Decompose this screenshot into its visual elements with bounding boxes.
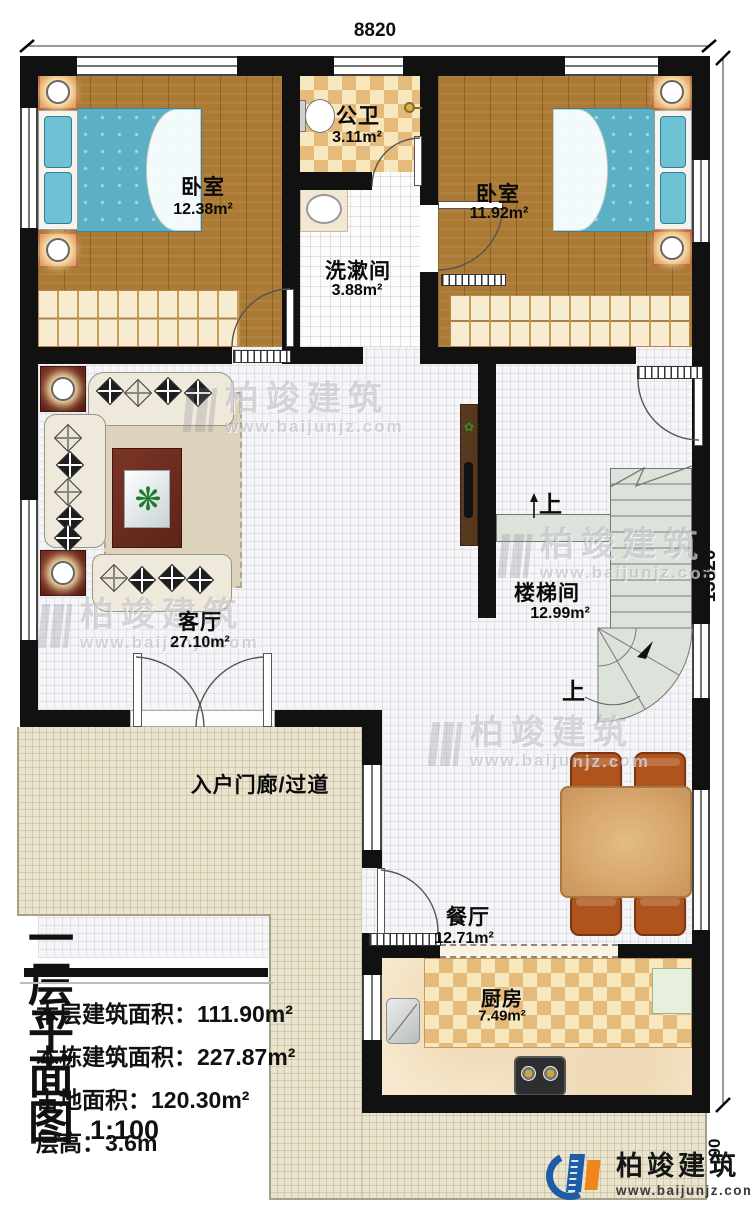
watermark: 柏竣建筑 www.baijunjz.com <box>185 382 404 437</box>
small-plant-icon: ✿ <box>461 420 477 434</box>
wall <box>290 347 363 364</box>
nightstand <box>652 74 692 110</box>
window <box>692 790 710 930</box>
room-label-bedroom-right: 卧室 <box>476 178 520 208</box>
wall <box>420 347 636 364</box>
window <box>334 56 403 76</box>
nightstand <box>38 74 78 110</box>
room-label-porch: 入户门廊/过道 <box>191 769 330 799</box>
wall <box>362 850 382 868</box>
nightstand <box>652 230 692 266</box>
door-panel <box>263 653 272 727</box>
room-area-washroom: 3.88m² <box>332 282 383 300</box>
wall <box>420 56 438 205</box>
door-panel <box>694 378 703 446</box>
wall <box>20 347 232 364</box>
wall <box>362 1095 710 1113</box>
wall <box>382 944 440 958</box>
brand-name: 柏竣建筑 <box>616 1153 750 1180</box>
wardrobe-right <box>450 295 690 347</box>
watermark-name: 柏竣建筑 <box>470 716 649 750</box>
title-block-row: 占地面积：120.30m² <box>36 1081 249 1115</box>
bed-left-pillow <box>44 116 72 168</box>
dining-chair <box>570 892 622 936</box>
lamp-icon <box>46 80 70 104</box>
room-area-stairwell: 12.99m² <box>530 605 590 623</box>
window <box>692 160 710 242</box>
porch-edge <box>17 727 19 915</box>
wall <box>658 56 710 76</box>
wall <box>20 56 77 76</box>
stair-up-label: 上 <box>539 485 563 519</box>
watermark-url: www.baijunjz.com <box>225 416 404 437</box>
title-block-row: 层高：3.6m <box>36 1124 157 1158</box>
title-block-row: 本栋建筑面积：227.87m² <box>36 1038 295 1072</box>
tv-screen <box>464 462 473 518</box>
watermark-name: 柏竣建筑 <box>225 382 404 416</box>
dining-chair <box>634 892 686 936</box>
title-rule-thin <box>20 982 273 984</box>
wall <box>700 347 710 364</box>
door-panel <box>286 289 294 347</box>
plant-icon: ❋ <box>130 480 166 518</box>
fridge <box>652 968 692 1014</box>
lamp-icon <box>660 80 684 104</box>
lamp-icon <box>660 236 684 260</box>
window <box>362 765 382 850</box>
wall <box>272 710 382 727</box>
lamp-icon <box>46 238 70 262</box>
room-label-dining: 餐厅 <box>446 901 490 931</box>
lamp-icon <box>51 377 75 401</box>
wardrobe-left <box>38 290 240 347</box>
entry-threshold <box>130 710 275 727</box>
door-sill <box>369 933 441 946</box>
wall <box>618 944 692 958</box>
wall <box>478 364 496 618</box>
bed-right-pillow <box>660 116 686 168</box>
watermark-logo-icon <box>38 604 73 648</box>
wall <box>420 272 438 364</box>
wall <box>282 172 372 190</box>
brand-logo-icon <box>546 1146 608 1204</box>
door-panel <box>133 653 142 727</box>
bed-right-pillow <box>660 172 686 224</box>
window <box>565 56 658 76</box>
room-label-washroom: 洗漱间 <box>325 255 391 285</box>
room-area-kitchen: 7.49m² <box>478 1008 526 1025</box>
door-sill <box>441 274 506 286</box>
door-panel <box>414 136 422 186</box>
window <box>20 500 38 640</box>
brand-logo: 柏竣建筑 www.baijunjz.com <box>546 1146 750 1204</box>
window <box>692 624 710 698</box>
window <box>362 975 382 1040</box>
watermark: 柏竣建筑 www.baijunjz.com <box>430 716 649 771</box>
toilet-bowl <box>305 99 335 133</box>
brand-url: www.baijunjz.com <box>616 1183 750 1198</box>
floor-plan-canvas: ❋ ✿ <box>0 0 750 1217</box>
kitchen-sink <box>386 998 420 1044</box>
door-sill <box>233 350 291 363</box>
logo-tower-orange <box>584 1160 600 1190</box>
wall <box>20 710 133 727</box>
room-area-living: 27.10m² <box>170 634 230 652</box>
window <box>20 108 38 228</box>
dining-table <box>560 786 692 898</box>
porch-floor <box>18 727 362 915</box>
side-table <box>40 550 86 596</box>
washroom-sink <box>306 194 342 224</box>
watermark-name: 柏竣建筑 <box>80 598 259 632</box>
wall <box>692 930 710 1113</box>
stove-burner-icon <box>543 1066 558 1081</box>
window <box>77 56 237 76</box>
watermark-url: www.baijunjz.com <box>470 750 649 771</box>
watermark-logo-icon <box>498 534 533 578</box>
wall <box>20 76 38 108</box>
dimension-right: 13820 <box>699 538 721 614</box>
room-label-bedroom-left: 卧室 <box>181 171 225 201</box>
room-label-living: 客厅 <box>178 606 222 636</box>
wall <box>362 727 382 765</box>
room-label-bathroom: 公卫 <box>336 100 380 130</box>
room-area-bathroom: 3.11m² <box>332 129 382 147</box>
title-rule-thick <box>24 968 268 977</box>
watermark-logo-icon <box>183 388 218 432</box>
room-label-stairwell: 楼梯间 <box>514 577 580 607</box>
door-panel <box>377 868 385 934</box>
room-area-bedroom-left: 12.38m² <box>173 201 233 219</box>
wall <box>20 228 38 500</box>
wall <box>692 76 710 160</box>
shower-head-icon <box>404 102 415 113</box>
watermark-logo-icon <box>428 722 463 766</box>
stair-up-label: 上 <box>562 672 586 706</box>
nightstand <box>38 232 78 268</box>
room-area-dining: 12.71m² <box>434 930 494 948</box>
title-block-row: 本层建筑面积：111.90m² <box>36 995 293 1029</box>
lamp-icon <box>51 561 75 585</box>
wall <box>692 698 710 790</box>
bed-left-pillow <box>44 172 72 224</box>
side-table <box>40 366 86 412</box>
watermark-name: 柏竣建筑 <box>540 528 719 562</box>
dimension-top: 8820 <box>330 20 420 42</box>
stove-burner-icon <box>521 1066 536 1081</box>
watermark: 柏竣建筑 www.baijunjz.com <box>500 528 719 583</box>
room-area-bedroom-right: 11.92m² <box>470 205 529 223</box>
